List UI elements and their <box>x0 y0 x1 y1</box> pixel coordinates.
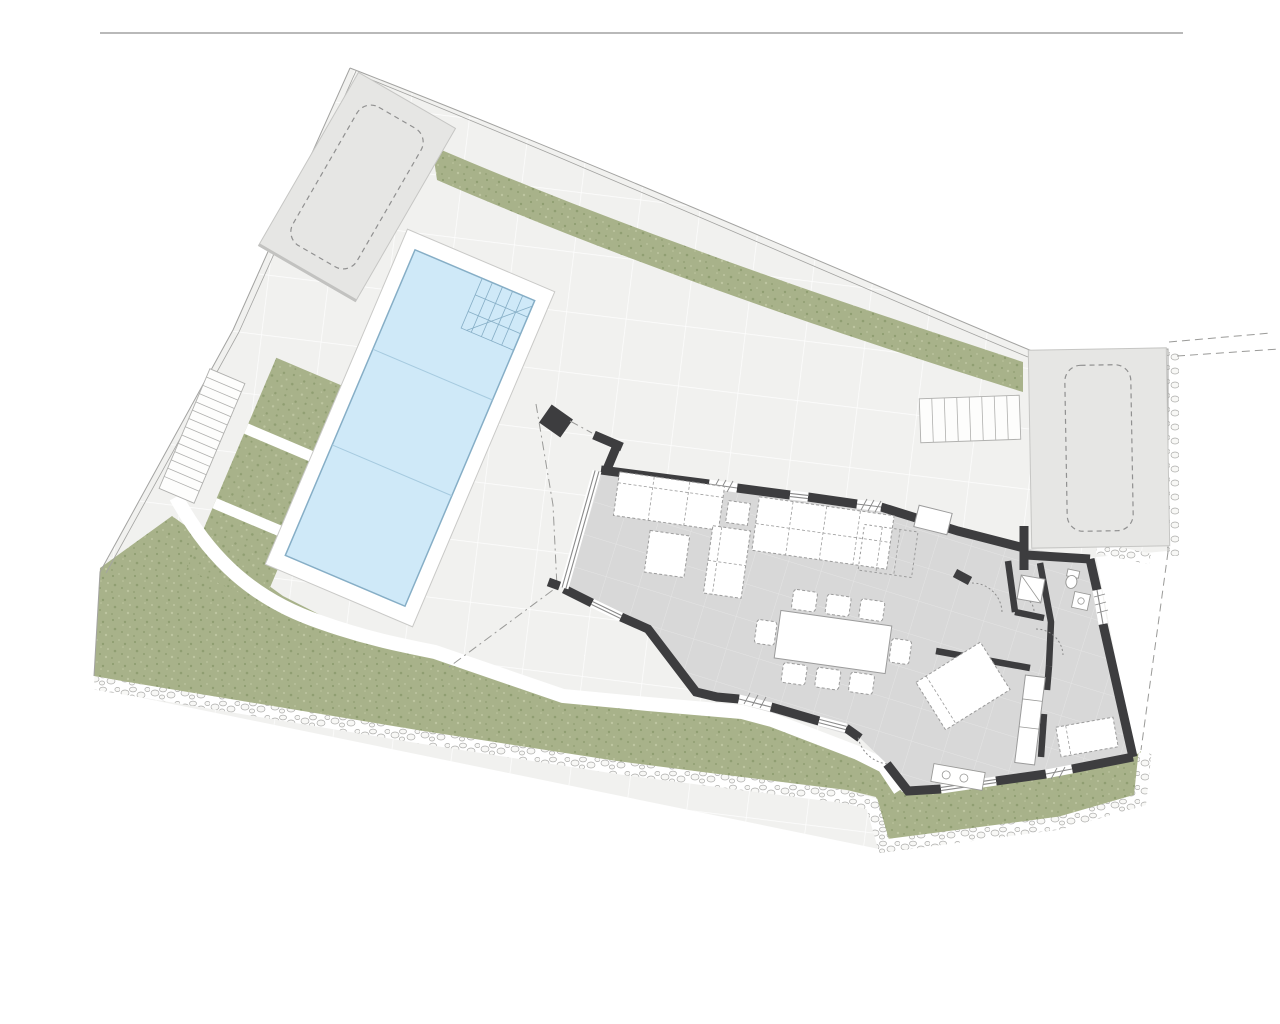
iwall-corridor-2 <box>1047 666 1049 690</box>
coffee-table <box>644 530 689 577</box>
dining-chair <box>781 662 808 685</box>
boundary-dashed-southeast <box>1141 552 1168 750</box>
side-table <box>726 501 751 526</box>
boundary-dashed-topright-1 <box>1169 333 1271 342</box>
dining-chair <box>815 667 842 690</box>
parking-right-pad <box>1028 348 1169 548</box>
iwall-corridor-3 <box>1041 714 1044 757</box>
window-north-2 <box>790 493 808 498</box>
floor-plan-canvas <box>0 0 1280 1024</box>
dining-chair <box>825 594 852 617</box>
wall-wing-top <box>1026 555 1090 559</box>
bath-closet <box>1017 575 1045 603</box>
boundary-dashed-topright-2 <box>1177 349 1279 356</box>
dining-chair <box>791 589 818 612</box>
dining-chair <box>889 638 912 665</box>
dining-chair <box>848 672 875 695</box>
site-plan-drawing <box>0 0 1280 1024</box>
dining-chair <box>859 599 886 622</box>
parking-right <box>1028 348 1169 548</box>
dining-chair <box>754 619 777 646</box>
shower-basin <box>1072 592 1091 611</box>
terrace-stair <box>919 395 1020 442</box>
